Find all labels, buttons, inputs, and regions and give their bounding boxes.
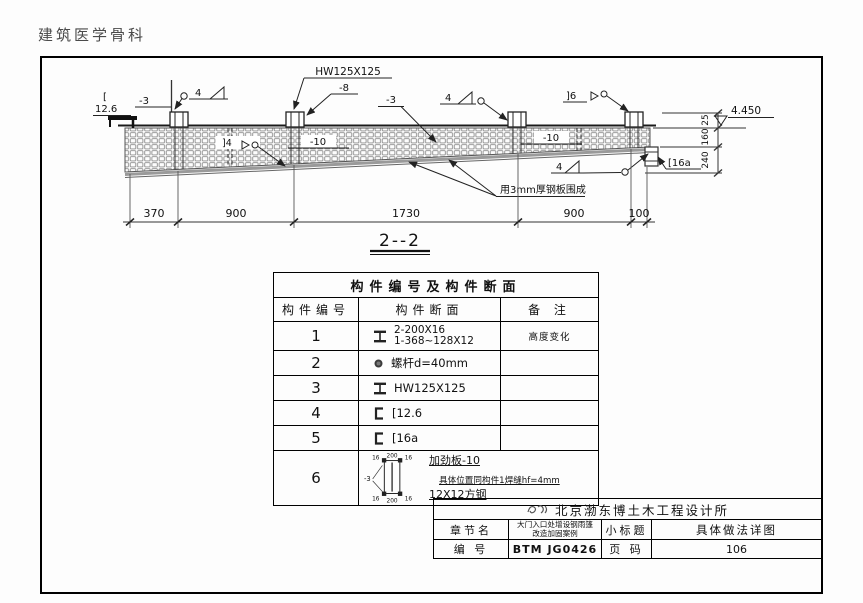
company-name: 北京渤东博土木工程设计所 [555,500,729,519]
component-table: 构件编号及构件断面 构件编号 构件断面 备 注 1 2-200X161-368~… [273,272,599,506]
vdim-160: 160 [701,128,711,145]
channel-icon [373,407,385,420]
table-row: 3 HW125X125 [274,376,599,401]
col-header-remark: 备 注 [501,298,599,322]
plate-3-left-callout: -3 [135,96,171,107]
svg-text:16: 16 [405,496,413,502]
weld-j6-label: ]6 [566,91,576,102]
weld-4-bottom-symbol: 4 [551,154,648,175]
subtitle-label: 小标题 [602,520,652,540]
table-row: 4 [12.6 [274,401,599,426]
row-remark [501,351,599,376]
row-number: 1 [274,322,359,351]
wrap-plate-label: 用3mm厚钢板围成 [500,183,586,196]
section-spec: HW125X125 [394,382,466,394]
plate-10-b-label: -10 [543,133,559,144]
row-remark [501,426,599,451]
weld-4-mid-label: 4 [445,93,451,104]
chapter-label: 章节名 [434,520,509,540]
section-title: 2--2 [370,231,430,255]
row-remark: 高度变化 [501,322,599,351]
channel-16a-label: [16a [668,158,691,169]
row-number: 4 [274,401,359,426]
section-spec: [16a [392,432,418,444]
drawing-sheet: 建筑医学骨科 [0,0,863,603]
hdim-370: 370 [144,207,165,220]
hdim-100: 100 [629,207,650,220]
plate-3-left-label: -3 [139,96,149,107]
row-number: 5 [274,426,359,451]
number-label: 编 号 [434,540,509,559]
i-beam-icon [373,382,387,395]
channel-size-label: 12.6 [95,104,117,115]
channel-12-6-callout: [ 12.6 [93,92,131,116]
table-title: 构件编号及构件断面 [274,273,599,298]
hw125-label: HW125X125 [315,66,381,78]
i-beam-icon [373,330,387,343]
vdim-25: 25 [701,114,711,125]
elevation-mark: 4.450 [715,105,774,125]
tapered-beam-body [118,126,656,178]
plate-8-callout: -8 [307,83,358,115]
row-number: 6 [274,451,359,506]
stiffener-note: 加劲板-10 [429,454,560,468]
subtitle-value: 具体做法详图 [652,520,822,540]
channel-symbol-label: [ [103,92,107,103]
weld-4-left-symbol: 4 [175,87,228,109]
svg-text:-3: -3 [364,475,371,483]
weld-j4-label: ]4 [222,138,232,149]
weld-4-left-label: 4 [195,88,201,99]
plate-3-mid-label: -3 [386,95,396,106]
plate-8-label: -8 [339,83,349,94]
weld-note: 具体位置同构件1焊缝hf=4mm [439,476,560,487]
section-spec: 2-200X161-368~128X12 [394,325,474,348]
row6-notes: 加劲板-10 具体位置同构件1焊缝hf=4mm 12X12方钢 [429,454,560,502]
page-value: 106 [652,540,822,559]
section-spec: [12.6 [392,407,422,419]
svg-text:16: 16 [372,496,380,502]
svg-text:16: 16 [405,456,413,462]
channel-icon [373,432,385,445]
weld-4-mid-symbol: 4 [440,92,507,120]
section-title-text: 2--2 [379,231,421,251]
vdim-240: 240 [701,151,711,168]
table-row: 2 螺杆d=40mm [274,351,599,376]
right-channel-16a [645,147,658,166]
row-number: 3 [274,376,359,401]
svg-text:200: 200 [387,454,398,460]
row-number: 2 [274,351,359,376]
weld-4-bottom-label: 4 [556,162,562,173]
table-row: 1 2-200X161-368~128X12 高度变化 [274,322,599,351]
hdim-900-b: 900 [564,207,585,220]
hdim-900-a: 900 [226,207,247,220]
col-header-section: 构件断面 [359,298,501,322]
svg-text:16: 16 [372,456,380,462]
plate-10-a-label: -10 [310,137,326,148]
hdim-1730: 1730 [392,207,420,220]
vertical-dim-chain: 25 160 240 [645,110,746,177]
row-remark [501,376,599,401]
title-block: 北京渤东博土木工程设计所 章节名 大门入口处增设钢雨篷 改造加固案例 小标题 具… [433,498,822,559]
chapter-value: 大门入口处增设钢雨篷 改造加固案例 [509,520,602,540]
row-remark [501,401,599,426]
col-header-number: 构件编号 [274,298,359,322]
number-value: BTM JG0426 [509,540,602,559]
company-logo-icon [526,503,550,516]
elevation-value: 4.450 [731,105,761,117]
weld-j6-symbol: ]6 [563,91,628,111]
table-row: 5 [16a [274,426,599,451]
box-section-sketch-icon: 200 16 16 -3 200 16 16 [363,452,427,504]
section-spec: 螺杆d=40mm [391,357,468,369]
section-2-2-drawing: [ 12.6 -3 4 HW125X125 -8 [0,0,863,270]
svg-text:200: 200 [387,499,398,504]
bolt-icon [373,358,384,369]
page-label: 页 码 [602,540,652,559]
channel-16a-callout: [16a [658,157,701,169]
